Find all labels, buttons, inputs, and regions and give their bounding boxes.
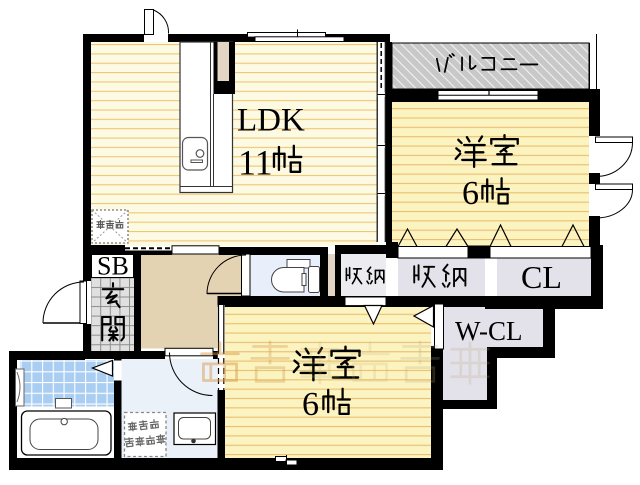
- svg-text:6: 6: [462, 175, 479, 212]
- svg-text:LDK: LDK: [237, 103, 305, 139]
- svg-text:6: 6: [302, 386, 319, 423]
- svg-text:SB: SB: [97, 252, 129, 281]
- svg-text:11: 11: [238, 143, 273, 183]
- svg-text:CL: CL: [521, 259, 562, 295]
- svg-text:W-CL: W-CL: [455, 316, 523, 346]
